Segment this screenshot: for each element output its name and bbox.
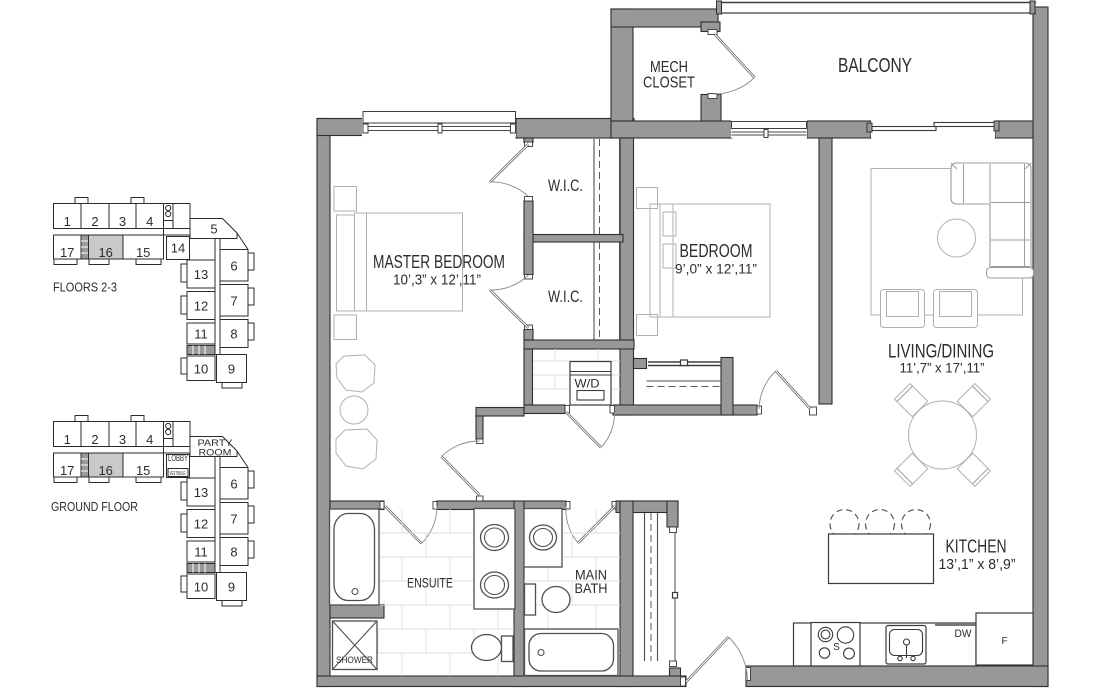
svg-text:BEDROOM: BEDROOM bbox=[680, 241, 753, 261]
svg-text:14: 14 bbox=[171, 241, 185, 256]
svg-text:11’,7” x 17’,11”: 11’,7” x 17’,11” bbox=[900, 360, 985, 376]
svg-text:GROUND FLOOR: GROUND FLOOR bbox=[51, 499, 138, 514]
svg-text:W.I.C.: W.I.C. bbox=[548, 287, 583, 306]
svg-text:LOBBY: LOBBY bbox=[168, 453, 188, 464]
svg-text:FLOORS 2-3: FLOORS 2-3 bbox=[53, 280, 117, 295]
svg-text:5: 5 bbox=[210, 222, 217, 237]
svg-text:CLOSET: CLOSET bbox=[643, 75, 695, 92]
svg-text:SHOWER: SHOWER bbox=[336, 655, 373, 666]
svg-text:F: F bbox=[1001, 636, 1007, 647]
svg-text:ENSUITE: ENSUITE bbox=[407, 575, 453, 591]
svg-text:PARTY: PARTY bbox=[198, 438, 233, 448]
svg-text:BALCONY: BALCONY bbox=[838, 55, 912, 77]
svg-text:W.I.C.: W.I.C. bbox=[548, 176, 583, 195]
svg-text:MASTER BEDROOM: MASTER BEDROOM bbox=[373, 252, 505, 272]
svg-text:S: S bbox=[833, 642, 840, 653]
svg-text:13’,1” x 8’,9”: 13’,1” x 8’,9” bbox=[939, 556, 1016, 573]
svg-text:DW: DW bbox=[955, 628, 973, 640]
svg-text:BATH: BATH bbox=[575, 580, 608, 596]
svg-text:10’,3” x 12’,11”: 10’,3” x 12’,11” bbox=[393, 272, 481, 289]
svg-text:W/D: W/D bbox=[575, 377, 600, 391]
svg-text:KITCHEN: KITCHEN bbox=[946, 537, 1007, 557]
svg-text:ROOM: ROOM bbox=[199, 448, 232, 458]
svg-text:9’,0” x 12’,11”: 9’,0” x 12’,11” bbox=[675, 261, 757, 277]
svg-text:MECH: MECH bbox=[650, 59, 688, 76]
